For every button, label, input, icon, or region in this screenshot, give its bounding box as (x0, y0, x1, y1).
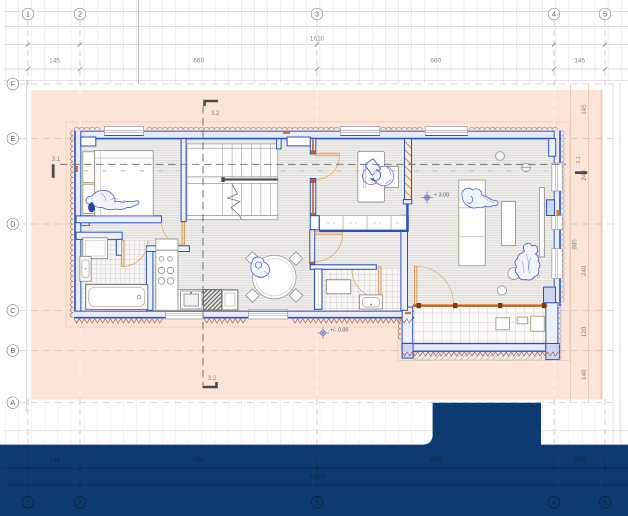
svg-text:+/- 0.00: +/- 0.00 (330, 328, 348, 334)
svg-text:4: 4 (552, 498, 556, 507)
svg-text:120: 120 (581, 326, 588, 337)
svg-text:5: 5 (603, 498, 607, 507)
svg-text:145: 145 (574, 456, 586, 463)
svg-text:B: B (10, 346, 15, 355)
svg-text:145: 145 (49, 58, 60, 65)
svg-text:3.2: 3.2 (211, 111, 220, 117)
svg-text:1: 1 (26, 498, 30, 507)
svg-text:660: 660 (430, 456, 442, 463)
svg-text:5: 5 (603, 10, 607, 19)
svg-text:E: E (10, 134, 15, 143)
svg-text:145: 145 (574, 58, 585, 65)
svg-text:D: D (10, 220, 15, 229)
svg-text:4: 4 (552, 10, 556, 19)
svg-text:3.2: 3.2 (208, 376, 217, 382)
svg-text:+ 3.00: + 3.00 (434, 193, 449, 199)
svg-text:885: 885 (572, 239, 579, 250)
svg-text:1: 1 (26, 10, 30, 19)
svg-text:C: C (10, 306, 15, 315)
svg-text:2: 2 (78, 10, 82, 19)
svg-text:3.1: 3.1 (52, 157, 61, 163)
svg-text:145: 145 (581, 104, 588, 115)
svg-text:140: 140 (581, 369, 588, 380)
svg-text:1610: 1610 (310, 36, 325, 43)
svg-text:1610: 1610 (309, 474, 324, 481)
svg-text:A: A (10, 398, 15, 407)
svg-text:660: 660 (430, 58, 441, 65)
svg-text:3.1: 3.1 (576, 156, 582, 164)
svg-text:F: F (11, 80, 16, 89)
svg-text:660: 660 (193, 58, 204, 65)
svg-text:2: 2 (78, 498, 82, 507)
svg-text:145: 145 (49, 456, 61, 463)
svg-text:660: 660 (193, 456, 205, 463)
svg-text:240: 240 (581, 265, 588, 276)
svg-text:3: 3 (315, 10, 319, 19)
svg-text:3: 3 (315, 498, 319, 507)
